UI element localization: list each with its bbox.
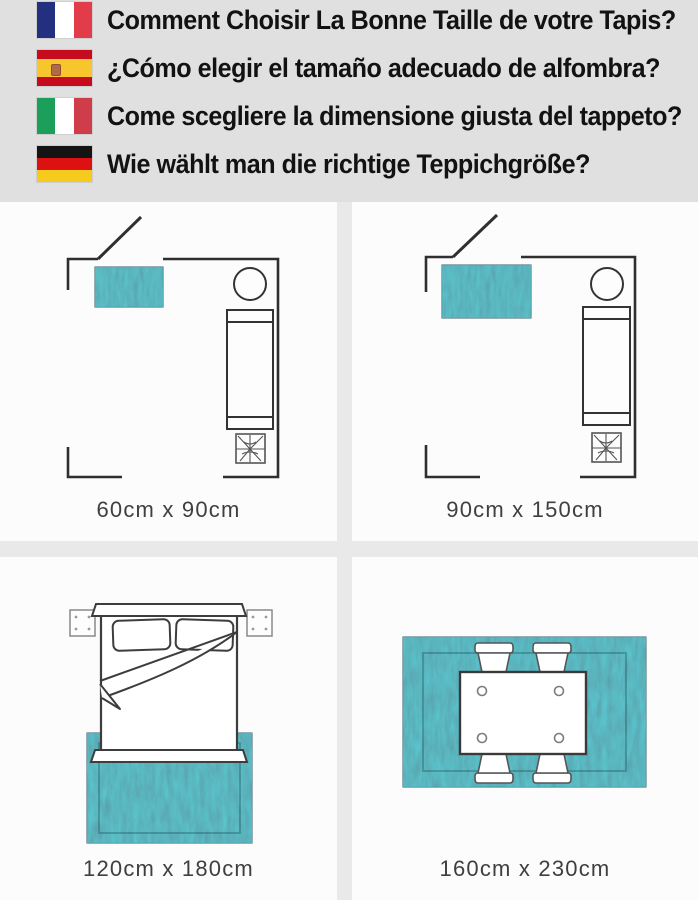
spain-coat-of-arms-icon	[51, 64, 61, 76]
pillow-left	[112, 619, 170, 651]
italy-flag-icon	[37, 98, 92, 134]
bedroom-rug-plan	[0, 557, 337, 900]
nightstand-right	[247, 610, 272, 636]
round-side-table	[591, 268, 623, 300]
chair-bottom-left	[475, 754, 513, 783]
pillow-right	[175, 619, 233, 651]
size-label-90x150: 90cm x 150cm	[352, 497, 698, 523]
door-swing-icon	[453, 215, 497, 257]
title-text-spanish: ¿Cómo elegir el tamaño adecuado de alfom…	[107, 53, 660, 84]
title-row-french: Comment Choisir La Bonne Taille de votre…	[37, 2, 698, 38]
console-table	[583, 307, 630, 425]
size-label-160x230: 160cm x 230cm	[352, 856, 698, 882]
title-text-italian: Come scegliere la dimensione giusta del …	[107, 101, 682, 132]
panel-rug-160x230: 160cm x 230cm	[352, 557, 698, 900]
footboard	[91, 750, 247, 762]
headboard	[92, 604, 246, 616]
title-text-german: Wie wählt man die richtige Teppichgröße?	[107, 149, 590, 180]
potted-plant-icon	[592, 433, 621, 462]
title-text-french: Comment Choisir La Bonne Taille de votre…	[107, 5, 676, 36]
size-label-60x90: 60cm x 90cm	[0, 497, 337, 523]
round-side-table	[234, 268, 266, 300]
spain-flag-icon	[37, 50, 92, 86]
title-row-german: Wie wählt man die richtige Teppichgröße?	[37, 146, 698, 182]
dining-room-rug-plan	[352, 557, 698, 900]
panel-rug-90x150: 90cm x 150cm	[352, 202, 698, 541]
rug-swatch-90x150	[442, 265, 531, 318]
france-flag-icon	[37, 2, 92, 38]
chair-top-left	[475, 643, 513, 672]
room-plan-medium-rug	[352, 202, 698, 541]
title-row-spanish: ¿Cómo elegir el tamaño adecuado de alfom…	[37, 50, 698, 86]
nightstand-left	[70, 610, 95, 636]
dining-table	[460, 672, 586, 754]
potted-plant-icon	[236, 434, 265, 463]
bed	[91, 604, 247, 762]
chair-bottom-right	[533, 754, 571, 783]
title-row-italian: Come scegliere la dimensione giusta del …	[37, 98, 698, 134]
console-table	[227, 310, 273, 429]
rug-swatch-60x90	[95, 267, 163, 307]
rug-size-grid: 60cm x 90cm	[0, 202, 698, 900]
germany-flag-icon	[37, 146, 92, 182]
door-swing-icon	[98, 217, 141, 259]
room-plan-small-rug	[0, 202, 337, 541]
panel-rug-120x180: 120cm x 180cm	[0, 557, 337, 900]
panel-rug-60x90: 60cm x 90cm	[0, 202, 337, 541]
title-banner: Comment Choisir La Bonne Taille de votre…	[0, 0, 698, 202]
chair-top-right	[533, 643, 571, 672]
size-label-120x180: 120cm x 180cm	[0, 856, 337, 882]
